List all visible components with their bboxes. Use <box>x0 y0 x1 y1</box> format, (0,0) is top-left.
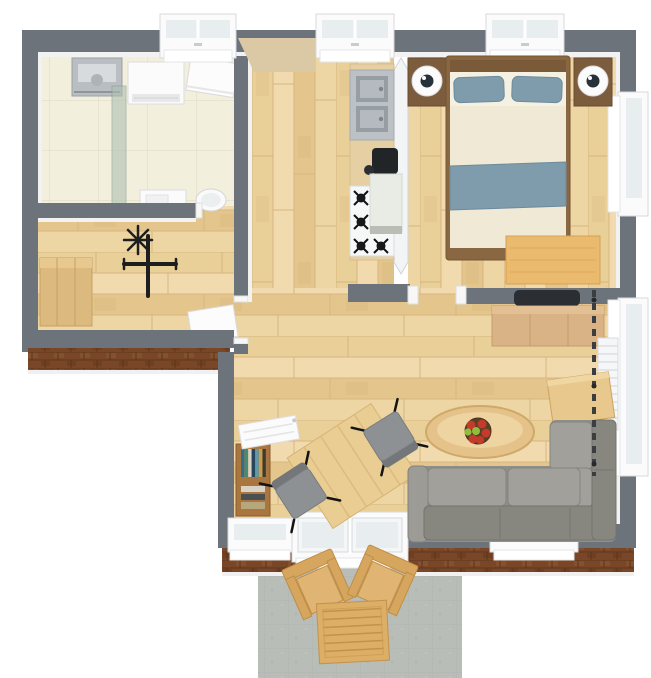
patio-table <box>316 600 389 664</box>
kitchen-island <box>370 174 402 234</box>
office-cabinet <box>40 258 92 326</box>
window-bedroom-top <box>486 14 564 62</box>
wall-tv <box>514 290 580 306</box>
nightstand-right <box>574 58 612 106</box>
book-spines <box>241 449 266 477</box>
kitchen-counter <box>350 64 402 260</box>
floor-plan-render <box>0 0 651 678</box>
sofa-chaise-seat <box>550 422 592 470</box>
washing-machine <box>128 62 184 104</box>
window-bathroom-top <box>160 14 236 62</box>
kitchen-stub-wall <box>348 284 410 302</box>
sofa-back-bottom <box>424 506 614 540</box>
bookshelf <box>236 444 270 516</box>
nightstand-left <box>408 58 446 106</box>
window-bedroom-right <box>608 92 648 216</box>
sofa-seat-cushion <box>428 468 506 506</box>
double-bed <box>446 56 570 260</box>
office-brick-face <box>28 348 230 370</box>
coffee-table <box>426 406 534 458</box>
left-wall <box>22 30 38 352</box>
headboard <box>450 60 566 72</box>
table-lamp-right <box>578 66 608 96</box>
fruit-bowl <box>464 418 491 444</box>
window-kitchen-top <box>316 14 394 62</box>
bathroom-door-open <box>186 56 239 97</box>
office-bottom-wall <box>22 330 234 348</box>
pillow-right <box>512 76 563 103</box>
table-lamp-left <box>412 66 442 96</box>
double-sink <box>350 70 394 140</box>
bathroom-divider-wall <box>38 203 196 218</box>
throw-blanket <box>450 162 566 210</box>
window-living-bottom-left <box>228 518 292 560</box>
bedroom-desk <box>506 236 600 284</box>
sofa-seat-cushion <box>508 468 580 506</box>
bedroom-door-jamb <box>408 286 418 304</box>
console-table <box>547 372 615 426</box>
bedroom-door-jamb <box>456 286 466 304</box>
hall-left-wall <box>234 56 248 302</box>
shower-glass-screen <box>112 86 126 206</box>
dark-curtain <box>592 290 597 476</box>
tv-sideboard <box>492 306 604 346</box>
floor-plan-stage <box>0 0 651 678</box>
pillow-left <box>454 76 505 103</box>
